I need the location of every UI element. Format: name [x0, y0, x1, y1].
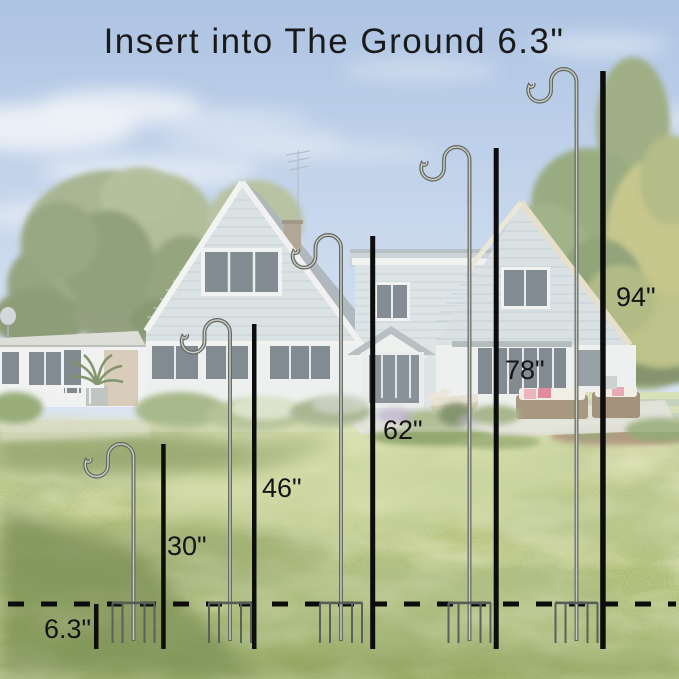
svg-text:30": 30" [167, 531, 207, 561]
svg-text:62": 62" [383, 415, 423, 445]
svg-text:46": 46" [262, 473, 302, 503]
svg-text:Insert into The Ground 6.3": Insert into The Ground 6.3" [104, 22, 565, 61]
svg-text:78": 78" [505, 355, 545, 385]
svg-text:6.3": 6.3" [44, 614, 91, 644]
svg-text:94": 94" [616, 282, 656, 312]
